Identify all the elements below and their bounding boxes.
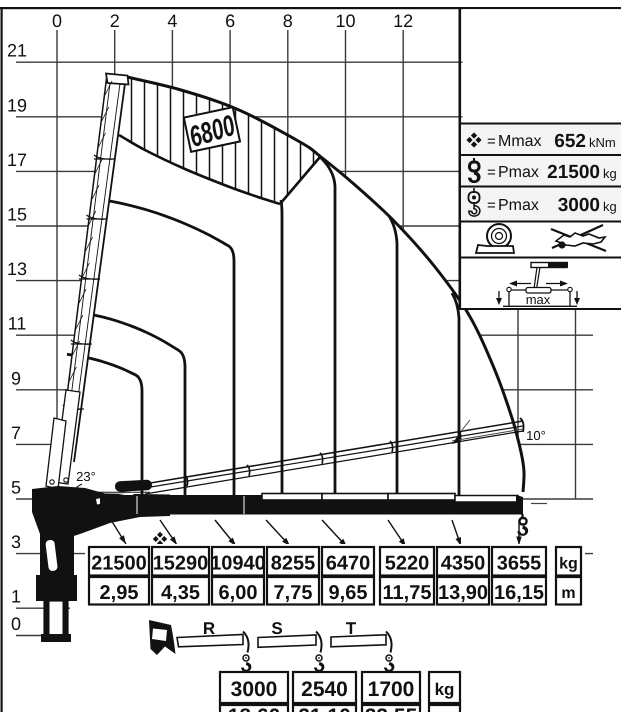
svg-text:5: 5	[11, 478, 21, 498]
svg-text:=: =	[487, 197, 496, 214]
svg-text:652: 652	[554, 131, 586, 152]
svg-text:3000: 3000	[558, 195, 600, 216]
svg-text:kg: kg	[603, 166, 617, 181]
svg-text:R: R	[203, 619, 215, 638]
svg-text:1: 1	[11, 587, 21, 607]
svg-text:11,75: 11,75	[383, 582, 432, 604]
svg-text:0: 0	[52, 11, 62, 31]
svg-text:3655: 3655	[497, 553, 542, 575]
svg-text:15: 15	[7, 205, 27, 225]
svg-text:7: 7	[11, 423, 21, 443]
svg-text:4350: 4350	[441, 553, 486, 575]
svg-text:17: 17	[7, 150, 27, 170]
svg-text:kg: kg	[603, 199, 617, 214]
svg-text:10: 10	[335, 11, 355, 31]
svg-text:5220: 5220	[385, 553, 430, 575]
svg-text:12: 12	[393, 11, 413, 31]
svg-text:kg: kg	[435, 680, 455, 699]
svg-text:max: max	[526, 292, 551, 307]
svg-text:2540: 2540	[301, 678, 348, 701]
svg-text:=: =	[487, 133, 496, 150]
svg-text:2: 2	[110, 11, 120, 31]
svg-text:21: 21	[7, 41, 27, 61]
svg-text:Pmax: Pmax	[498, 164, 539, 181]
svg-text:6,00: 6,00	[219, 582, 258, 604]
svg-text:3: 3	[11, 532, 21, 552]
svg-text:13: 13	[7, 259, 27, 279]
svg-text:m: m	[437, 707, 452, 712]
svg-text:16,15: 16,15	[494, 582, 544, 604]
svg-text:m: m	[561, 585, 575, 602]
svg-text:4: 4	[167, 11, 177, 31]
svg-text:21500: 21500	[547, 162, 600, 183]
svg-text:1700: 1700	[368, 678, 415, 701]
svg-text:Mmax: Mmax	[498, 133, 542, 150]
svg-text:10°: 10°	[526, 428, 546, 443]
svg-text:T: T	[346, 619, 357, 638]
svg-text:10940: 10940	[210, 553, 266, 575]
svg-text:19: 19	[7, 95, 27, 115]
svg-text:23°: 23°	[76, 469, 96, 484]
svg-text:S: S	[271, 619, 282, 638]
svg-text:kg: kg	[559, 556, 578, 573]
svg-text:kNm: kNm	[589, 135, 616, 150]
svg-text:Pmax: Pmax	[498, 197, 539, 214]
svg-text:0: 0	[11, 614, 21, 634]
svg-text:9,65: 9,65	[329, 582, 368, 604]
svg-text:8255: 8255	[271, 553, 316, 575]
svg-text:13,90: 13,90	[438, 582, 488, 604]
svg-text:6470: 6470	[326, 553, 371, 575]
svg-text:7,75: 7,75	[274, 582, 313, 604]
svg-text:=: =	[487, 164, 496, 181]
svg-text:11: 11	[8, 314, 27, 334]
svg-text:18,60: 18,60	[228, 705, 281, 712]
svg-text:15290: 15290	[153, 553, 209, 575]
svg-text:9: 9	[11, 368, 21, 388]
svg-text:21500: 21500	[91, 553, 147, 575]
svg-text:3000: 3000	[231, 678, 278, 701]
svg-text:4,35: 4,35	[161, 582, 200, 604]
svg-text:21,10: 21,10	[298, 705, 351, 712]
svg-text:6: 6	[225, 11, 235, 31]
svg-text:23,55: 23,55	[365, 705, 418, 712]
svg-text:2,95: 2,95	[100, 582, 139, 604]
svg-text:8: 8	[283, 11, 293, 31]
